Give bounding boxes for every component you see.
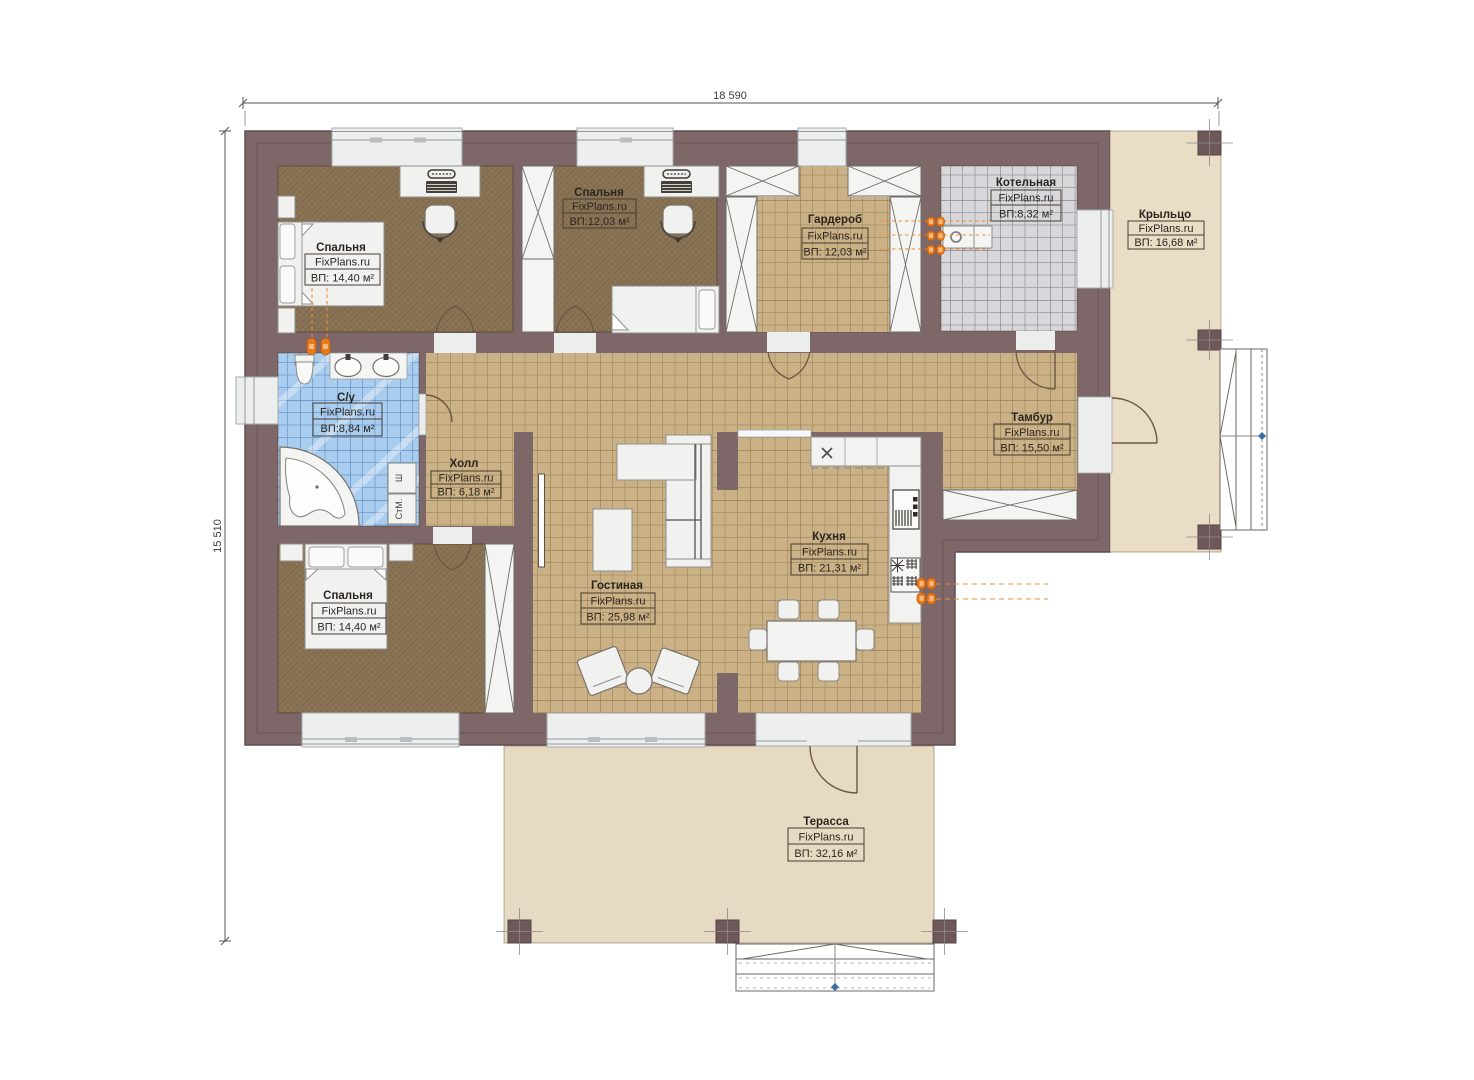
svg-text:FixPlans.ru: FixPlans.ru bbox=[315, 257, 370, 269]
svg-text:ВП: 12,03 м²: ВП: 12,03 м² bbox=[803, 247, 867, 259]
svg-text:FixPlans.ru: FixPlans.ru bbox=[321, 606, 376, 618]
svg-text:Ш: Ш bbox=[394, 474, 404, 482]
svg-text:С/у: С/у bbox=[337, 392, 356, 404]
svg-text:18 590: 18 590 bbox=[713, 90, 747, 102]
svg-text:ВП: 14,40 м²: ВП: 14,40 м² bbox=[311, 273, 375, 285]
svg-text:ВП:8,84 м²: ВП:8,84 м² bbox=[321, 423, 375, 435]
svg-text:ВП: 32,16 м²: ВП: 32,16 м² bbox=[794, 848, 858, 860]
svg-text:СтМ.: СтМ. bbox=[394, 499, 404, 520]
svg-text:FixPlans.ru: FixPlans.ru bbox=[798, 832, 853, 844]
svg-text:FixPlans.ru: FixPlans.ru bbox=[438, 473, 493, 485]
svg-text:FixPlans.ru: FixPlans.ru bbox=[1138, 223, 1193, 235]
svg-text:Холл: Холл bbox=[450, 458, 479, 470]
svg-text:FixPlans.ru: FixPlans.ru bbox=[998, 193, 1053, 205]
svg-text:15 510: 15 510 bbox=[212, 519, 224, 553]
svg-text:Спальня: Спальня bbox=[574, 187, 624, 199]
svg-text:Котельная: Котельная bbox=[996, 177, 1056, 189]
svg-text:FixPlans.ru: FixPlans.ru bbox=[807, 231, 862, 243]
svg-text:Кухня: Кухня bbox=[812, 531, 846, 543]
svg-text:Спальня: Спальня bbox=[316, 242, 366, 254]
svg-text:Спальня: Спальня bbox=[323, 590, 373, 602]
svg-text:Гостиная: Гостиная bbox=[591, 580, 643, 592]
svg-text:ВП:12,03 м²: ВП:12,03 м² bbox=[569, 216, 629, 228]
svg-text:FixPlans.ru: FixPlans.ru bbox=[320, 407, 375, 419]
svg-text:FixPlans.ru: FixPlans.ru bbox=[802, 547, 857, 559]
svg-text:FixPlans.ru: FixPlans.ru bbox=[1004, 427, 1059, 439]
svg-text:FixPlans.ru: FixPlans.ru bbox=[572, 201, 627, 213]
svg-text:Терасса: Терасса bbox=[803, 816, 849, 828]
svg-text:ВП: 15,50 м²: ВП: 15,50 м² bbox=[1000, 443, 1064, 455]
svg-text:Тамбур: Тамбур bbox=[1011, 412, 1053, 424]
svg-text:ВП:8,32 м²: ВП:8,32 м² bbox=[999, 209, 1053, 221]
svg-text:ВП: 21,31 м²: ВП: 21,31 м² bbox=[798, 563, 862, 575]
svg-text:ВП: 14,40 м²: ВП: 14,40 м² bbox=[317, 622, 381, 634]
svg-text:ВП: 16,68 м²: ВП: 16,68 м² bbox=[1134, 237, 1198, 249]
svg-text:ВП: 6,18 м²: ВП: 6,18 м² bbox=[437, 487, 494, 499]
svg-text:Крыльцо: Крыльцо bbox=[1139, 209, 1191, 221]
svg-text:Гардероб: Гардероб bbox=[808, 214, 862, 226]
svg-text:ВП: 25,98 м²: ВП: 25,98 м² bbox=[586, 612, 650, 624]
svg-text:FixPlans.ru: FixPlans.ru bbox=[590, 596, 645, 608]
